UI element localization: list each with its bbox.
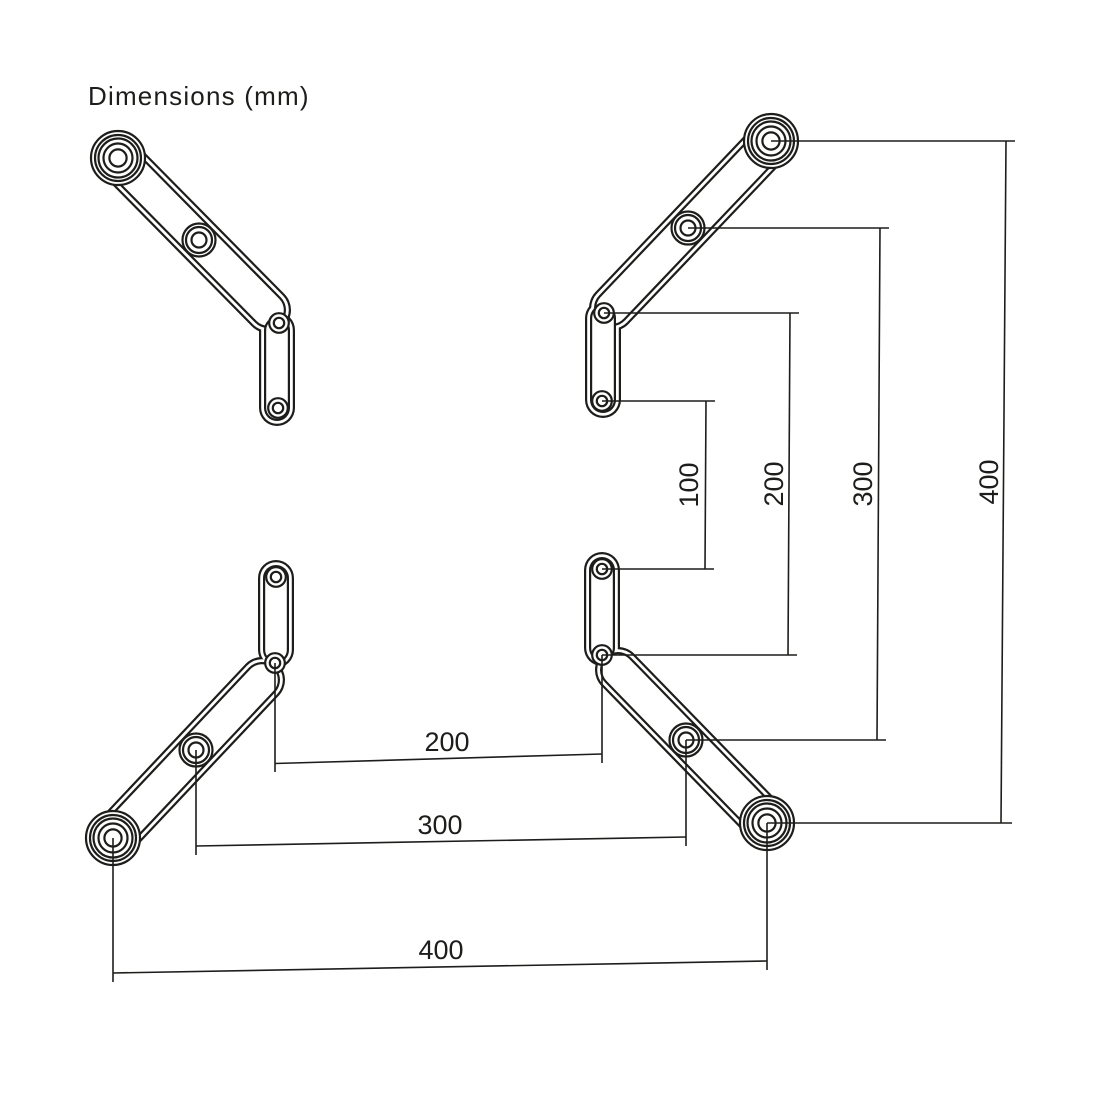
bracket-bottom-right [592,559,794,850]
hole-large [91,131,145,185]
bracket-arm-contour-fill [612,141,771,308]
dimension-labels: 100 200 300 400 200 300 400 [417,459,1004,965]
bracket-top-right [592,114,798,411]
dimension-label-h400: 400 [418,935,463,965]
bracket-arm-contour-fill [618,670,767,823]
bracket-bottom-left [86,567,286,865]
dimension-label-v200: 200 [759,461,789,506]
bracket-top-left [91,131,289,418]
dimension-label-h300: 300 [417,810,462,840]
dimension-drawing-canvas: Dimensions (mm) [0,0,1100,1100]
technical-drawing-page: Dimensions (mm) [0,0,1100,1100]
dimension-line-v100 [705,401,706,569]
dimension-label-v400: 400 [974,459,1004,504]
drawing-title: Dimensions (mm) [88,81,310,111]
dimension-label-v100: 100 [674,462,704,507]
dimension-label-h200: 200 [424,727,469,757]
dimension-label-v300: 300 [848,461,878,506]
hole-small [266,567,286,587]
hole-small [268,398,288,418]
hole-small [269,313,289,333]
